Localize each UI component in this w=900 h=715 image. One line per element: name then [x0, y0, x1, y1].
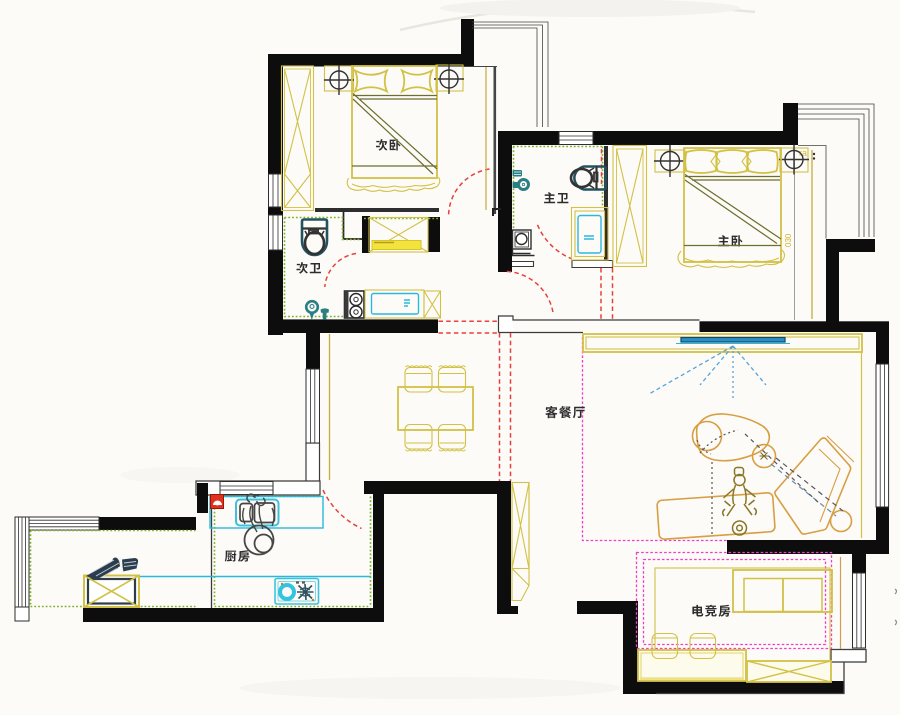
svg-text:030: 030	[784, 233, 793, 247]
